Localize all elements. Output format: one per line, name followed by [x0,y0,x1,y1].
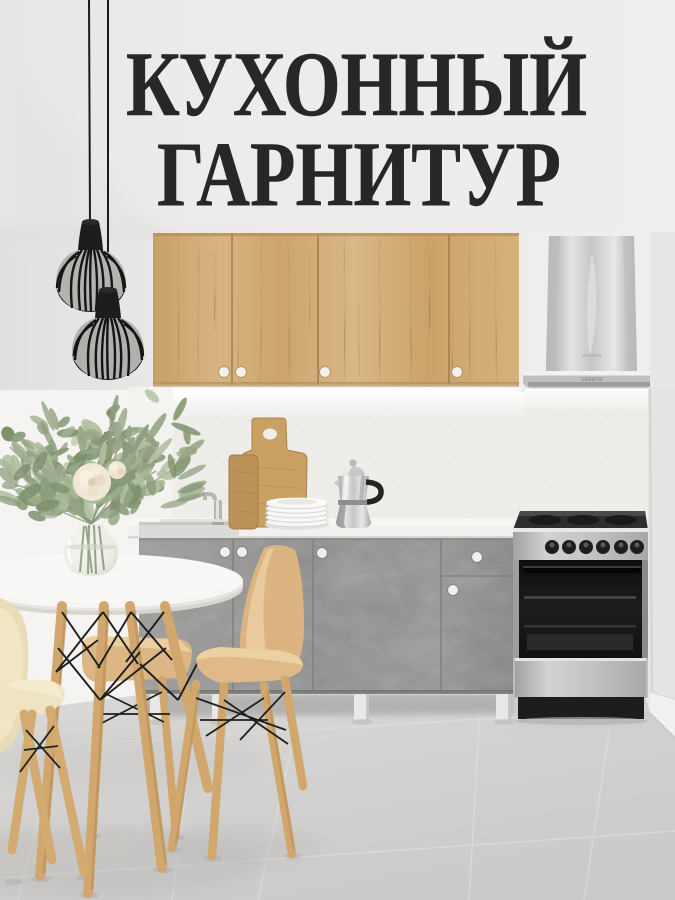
svg-text:КУХОННЫЙ: КУХОННЫЙ [126,33,587,135]
svg-text:ГАРНИТУР: ГАРНИТУР [157,123,561,225]
svg-text:SIEMENS: SIEMENS [581,378,603,383]
svg-text:SIEMENS: SIEMENS [582,353,602,358]
